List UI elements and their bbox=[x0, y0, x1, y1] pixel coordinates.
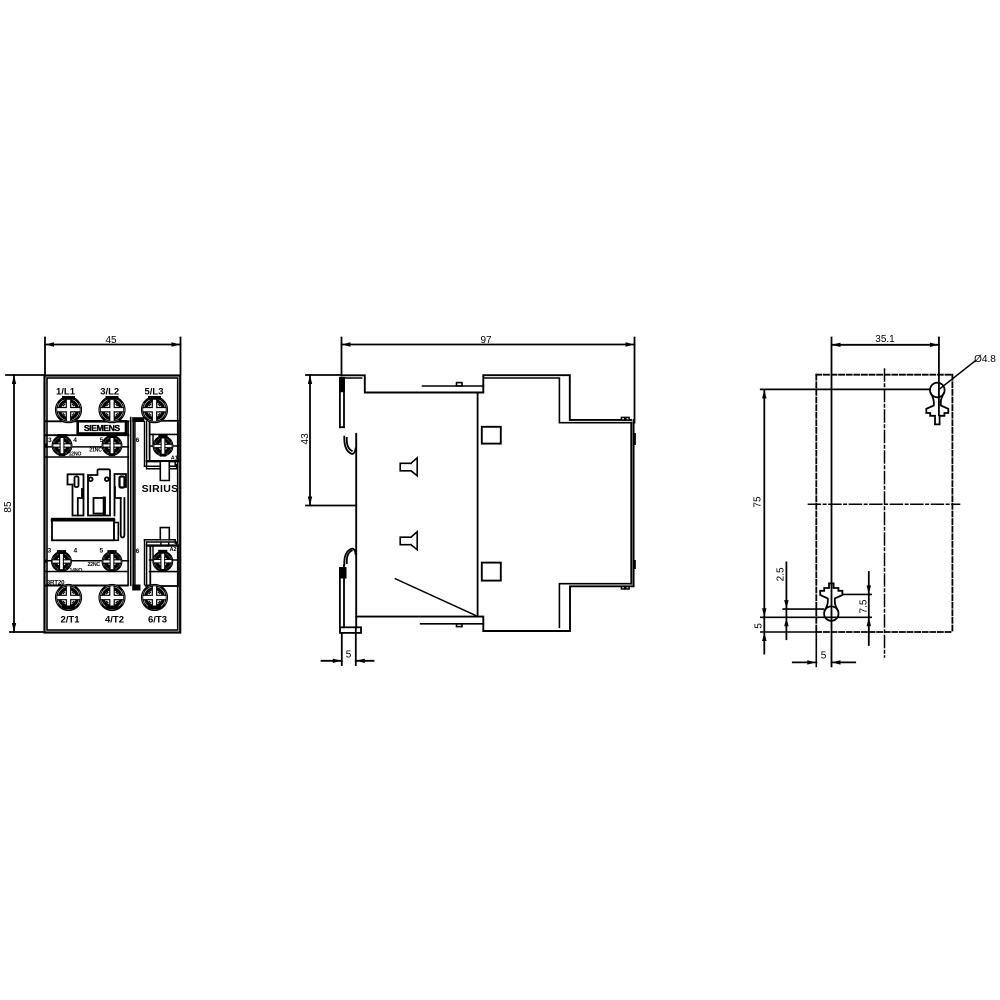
svg-text:4/T2: 4/T2 bbox=[105, 615, 124, 626]
svg-text:2.5: 2.5 bbox=[776, 567, 787, 581]
svg-text:3: 3 bbox=[48, 437, 52, 444]
svg-text:22NC: 22NC bbox=[88, 562, 101, 568]
svg-text:5: 5 bbox=[753, 623, 764, 629]
svg-text:4: 4 bbox=[73, 437, 77, 444]
svg-text:A2: A2 bbox=[170, 547, 177, 553]
svg-text:5: 5 bbox=[346, 650, 352, 661]
svg-text:5: 5 bbox=[821, 651, 827, 662]
svg-text:14NO: 14NO bbox=[70, 568, 83, 574]
svg-text:7.5: 7.5 bbox=[858, 599, 869, 613]
svg-text:Ø4.8: Ø4.8 bbox=[974, 354, 996, 365]
svg-text:2/T1: 2/T1 bbox=[60, 615, 80, 626]
svg-text:3RT20: 3RT20 bbox=[47, 579, 65, 586]
svg-text:3: 3 bbox=[48, 548, 52, 555]
svg-text:1/L1: 1/L1 bbox=[56, 387, 76, 398]
svg-text:A1: A1 bbox=[171, 455, 178, 461]
svg-text:6: 6 bbox=[136, 548, 140, 555]
svg-text:4: 4 bbox=[74, 548, 78, 555]
svg-text:21NC: 21NC bbox=[89, 447, 102, 453]
svg-text:75: 75 bbox=[753, 496, 764, 508]
svg-text:45: 45 bbox=[105, 335, 117, 346]
svg-text:5/L3: 5/L3 bbox=[144, 387, 163, 398]
svg-text:97: 97 bbox=[480, 335, 492, 346]
svg-text:35.1: 35.1 bbox=[875, 334, 895, 345]
svg-text:SIEMENS: SIEMENS bbox=[84, 423, 121, 433]
svg-text:SIRIUS: SIRIUS bbox=[142, 483, 179, 495]
svg-text:6/T3: 6/T3 bbox=[148, 615, 167, 626]
svg-text:5: 5 bbox=[100, 548, 104, 555]
svg-text:6: 6 bbox=[136, 437, 140, 444]
svg-text:3/L2: 3/L2 bbox=[100, 387, 119, 398]
svg-text:43: 43 bbox=[300, 433, 311, 445]
svg-text:85: 85 bbox=[3, 501, 14, 513]
svg-text:12NO: 12NO bbox=[69, 452, 82, 458]
